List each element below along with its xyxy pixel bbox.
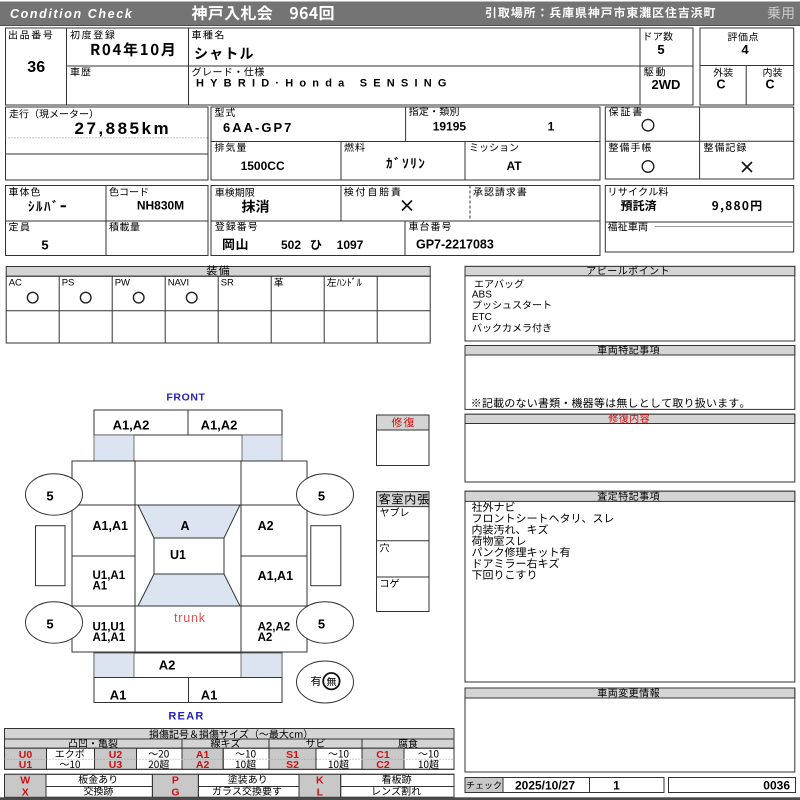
svg-text:C2: C2 [376, 759, 390, 771]
svg-text:5: 5 [41, 238, 48, 253]
svg-text:1: 1 [613, 779, 620, 793]
svg-text:K: K [316, 775, 324, 787]
svg-text:5: 5 [318, 617, 325, 632]
svg-text:1500CC: 1500CC [241, 159, 285, 173]
svg-text:ABS: ABS [472, 290, 492, 301]
svg-text:PS: PS [62, 278, 75, 289]
svg-text:502: 502 [281, 238, 301, 252]
svg-text:trunk: trunk [174, 611, 206, 625]
svg-text:5: 5 [657, 42, 664, 57]
svg-text:A2: A2 [196, 759, 210, 771]
svg-text:5: 5 [46, 489, 53, 504]
svg-text:5: 5 [318, 489, 325, 504]
svg-text:C: C [765, 78, 774, 92]
svg-text:FRONT: FRONT [166, 392, 205, 404]
svg-text:A2: A2 [258, 519, 274, 533]
svg-text:A1,A1: A1,A1 [93, 632, 126, 644]
svg-text:L: L [317, 786, 324, 798]
svg-text:0036: 0036 [763, 779, 790, 793]
svg-text:ETC: ETC [472, 312, 492, 323]
svg-text:X: X [22, 786, 29, 798]
svg-text:A1,A1: A1,A1 [258, 569, 293, 583]
svg-text:27,885km: 27,885km [75, 119, 172, 138]
svg-text:A1,A1: A1,A1 [93, 519, 128, 533]
svg-text:A1: A1 [93, 581, 108, 593]
svg-text:A2: A2 [258, 632, 273, 644]
svg-text:A1,A2: A1,A2 [201, 418, 238, 433]
svg-text:NAVI: NAVI [168, 278, 189, 289]
svg-text:5: 5 [46, 617, 53, 632]
svg-text:Condition Check: Condition Check [10, 7, 133, 21]
svg-text:P: P [172, 775, 179, 787]
svg-text:SR: SR [221, 278, 234, 289]
svg-text:6AA-GP7: 6AA-GP7 [223, 120, 293, 135]
svg-text:AC: AC [9, 278, 22, 289]
svg-text:A1: A1 [201, 688, 218, 703]
svg-text:2WD: 2WD [652, 77, 681, 92]
svg-text:S2: S2 [286, 759, 299, 771]
svg-text:HYBRID·Honda SENSING: HYBRID·Honda SENSING [196, 78, 453, 90]
svg-text:REAR: REAR [168, 711, 204, 723]
svg-text:U1: U1 [19, 759, 33, 771]
svg-text:19195: 19195 [433, 120, 467, 134]
svg-text:A1,A2: A1,A2 [113, 418, 150, 433]
svg-text:U1: U1 [170, 548, 186, 562]
svg-text:GP7-2217083: GP7-2217083 [416, 238, 494, 252]
svg-text:C: C [716, 78, 725, 92]
svg-text:NH830M: NH830M [137, 199, 184, 213]
svg-text:U3: U3 [109, 759, 123, 771]
svg-text:A2: A2 [159, 658, 176, 673]
svg-text:2025/10/27: 2025/10/27 [515, 779, 575, 793]
svg-text:A1: A1 [110, 688, 127, 703]
svg-text:PW: PW [115, 278, 130, 289]
svg-text:A: A [180, 519, 189, 533]
svg-text:1097: 1097 [337, 238, 364, 252]
svg-text:36: 36 [27, 59, 45, 76]
svg-text:AT: AT [506, 159, 522, 173]
svg-text:W: W [20, 775, 30, 787]
svg-text:1: 1 [548, 120, 555, 134]
svg-text:G: G [171, 786, 179, 798]
svg-text:4: 4 [741, 42, 749, 57]
